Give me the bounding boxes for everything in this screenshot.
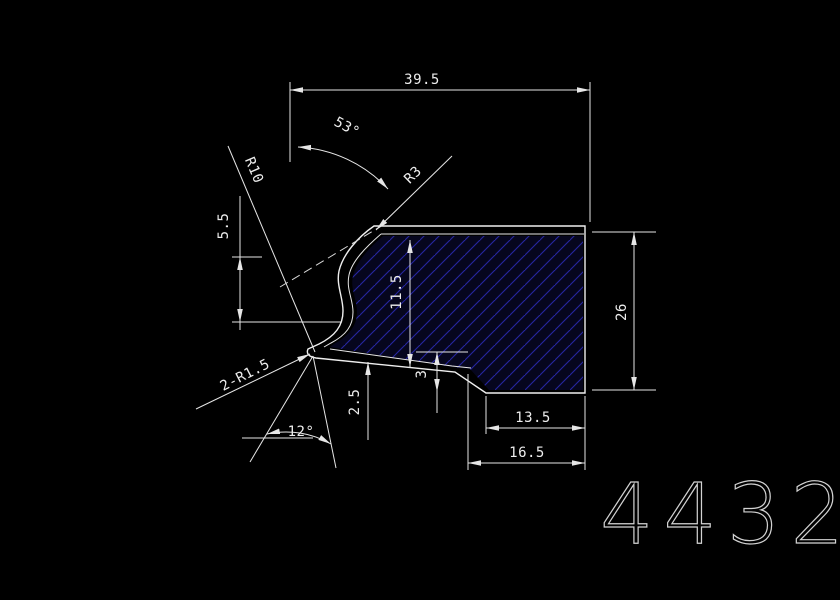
construction-lines (228, 146, 378, 468)
dim-right-height: 26 (592, 232, 656, 390)
dim-step-height-label: 3 (414, 370, 430, 379)
dim-corner-radius-label: R3 (401, 163, 425, 187)
dim-double-radius: 2-R1.5 (196, 354, 310, 409)
dim-bottom-width-label: 16.5 (509, 445, 545, 461)
cad-drawing-viewport: 39.5 53° R3 R10 5.5 11.5 26 2-R1.5 1 (0, 0, 840, 600)
dim-left-offset-label: 5.5 (216, 213, 232, 240)
cad-canvas: 39.5 53° R3 R10 5.5 11.5 26 2-R1.5 1 (0, 0, 840, 600)
dim-groove-radius-label: R10 (241, 155, 266, 186)
dim-top-angle-label: 53° (331, 114, 362, 141)
dim-bottom-angle: 12° (267, 424, 331, 444)
dim-total-width: 39.5 (290, 72, 590, 222)
dim-corner-radius: R3 (376, 156, 452, 230)
dim-total-width-label: 39.5 (404, 72, 440, 88)
part-number: 4432 (600, 465, 840, 563)
dim-lip-thickness-label: 2.5 (347, 389, 363, 416)
dim-top-angle: 53° (298, 114, 388, 189)
dim-inner-height-label: 11.5 (389, 274, 405, 310)
dim-left-offset: 5.5 (216, 196, 342, 330)
dim-bottom-angle-label: 12° (288, 424, 315, 440)
dim-lip-thickness: 2.5 (347, 362, 368, 440)
dim-step-width-label: 13.5 (515, 410, 551, 426)
dim-right-height-label: 26 (614, 303, 630, 321)
